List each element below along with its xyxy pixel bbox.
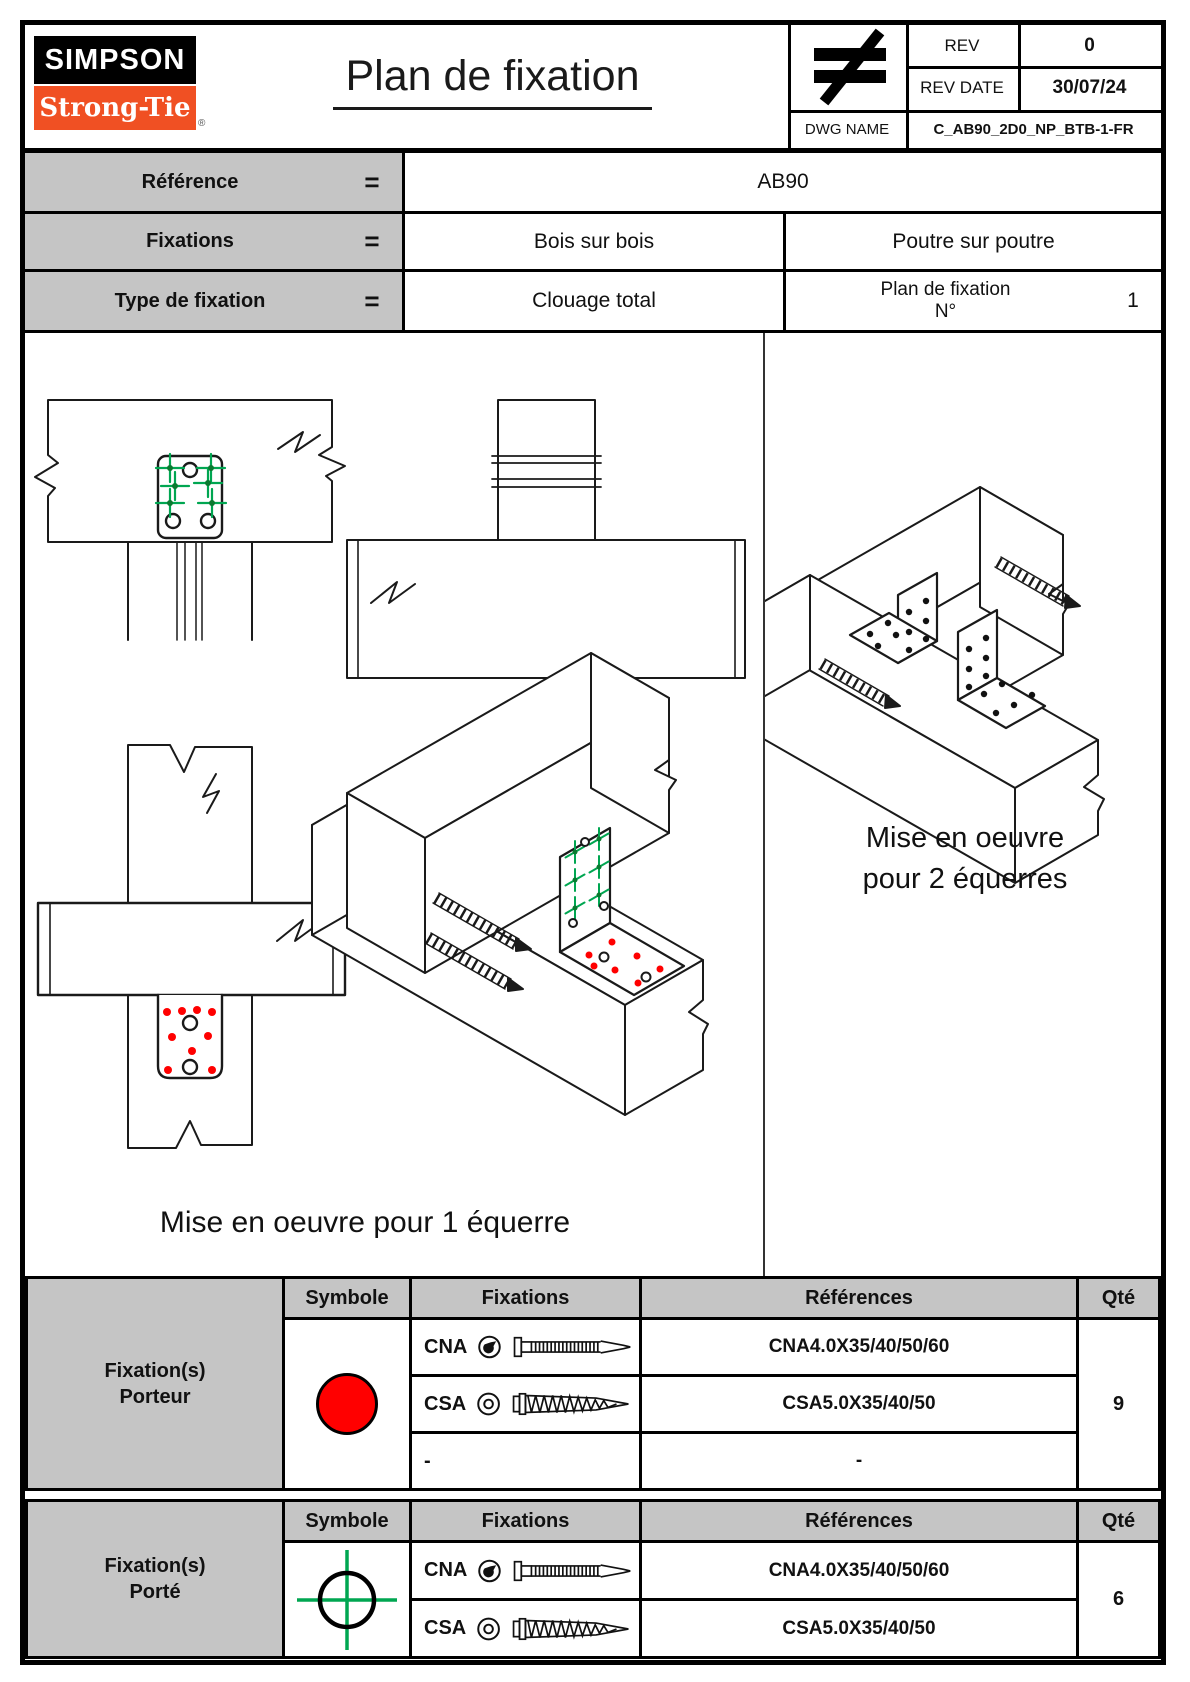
dwg-name-label: DWG NAME: [788, 110, 906, 148]
plan-view-top: [35, 400, 345, 640]
header-symbole: Symbole: [285, 1279, 409, 1317]
reference-csa: CSA5.0X35/40/50: [642, 1377, 1076, 1431]
header-fixations: Fixations: [412, 1279, 639, 1317]
symbol-cell-porteur: [285, 1320, 409, 1488]
symbol-cell-porte: [285, 1543, 409, 1656]
screw-icon: [511, 1390, 639, 1418]
fixation-table-porteur: Fixation(s) Porteur Symbole Fixations Ré…: [25, 1276, 1161, 1491]
reference-csa: CSA5.0X35/40/50: [642, 1601, 1076, 1656]
info-value-poutre: Poutre sur poutre: [786, 214, 1161, 269]
strongtie-logo: Strong-Tie: [34, 86, 196, 130]
rev-label: REV: [906, 25, 1018, 66]
front-view-top: [347, 400, 745, 678]
iso-view-single-bracket: [312, 653, 708, 1115]
logo-top-text: SIMPSON: [45, 44, 186, 77]
csa-head-icon: [476, 1390, 501, 1418]
fixation-table-porte: Fixation(s) Porté Symbole Fixations Réfé…: [25, 1499, 1161, 1659]
equals-icon: =: [352, 214, 392, 269]
header-qty: Qté: [1079, 1502, 1158, 1540]
info-label-type: Type de fixation: [25, 272, 355, 330]
reference-cna: CNA4.0X35/40/50/60: [642, 1543, 1076, 1598]
screw-icon: [511, 1615, 639, 1643]
info-value-clouage: Clouage total: [405, 272, 783, 330]
info-label-reference: Référence: [25, 153, 355, 211]
dwg-name-value: C_AB90_2D0_NP_BTB-1-FR: [906, 110, 1161, 148]
info-label-fixations: Fixations: [25, 214, 355, 269]
cross-view-bottom: [38, 745, 345, 1148]
red-circle-symbol: [316, 1373, 378, 1435]
header-fixations: Fixations: [412, 1502, 639, 1540]
info-value-reference: AB90: [405, 153, 1161, 211]
caption-double-bracket: Mise en oeuvre pour 2 équerres: [775, 818, 1155, 900]
csa-head-icon: [476, 1615, 501, 1643]
fixation-row-empty: -: [412, 1434, 639, 1488]
group-label-porteur: Fixation(s) Porteur: [28, 1279, 282, 1488]
qty-value-porte: 6: [1079, 1543, 1158, 1656]
rev-value: 0: [1018, 25, 1161, 66]
reference-empty: -: [642, 1434, 1076, 1488]
simpson-logo: SIMPSON: [34, 36, 196, 84]
ring-nail-icon: [512, 1334, 639, 1360]
equals-icon: =: [352, 272, 392, 330]
cna-head-icon: [477, 1333, 502, 1361]
rev-date-value: 30/07/24: [1018, 66, 1161, 110]
header-references: Références: [642, 1502, 1076, 1540]
reference-cna: CNA4.0X35/40/50/60: [642, 1320, 1076, 1374]
caption-single-bracket: Mise en oeuvre pour 1 équerre: [45, 1206, 685, 1240]
header-qty: Qté: [1079, 1279, 1158, 1317]
rev-date-label: REV DATE: [906, 66, 1018, 110]
plan-number-value: 1: [1105, 272, 1161, 330]
fixation-row-csa: CSA: [412, 1377, 639, 1431]
drawing-sheet: SIMPSON Strong-Tie ® Plan de fixation RE…: [0, 0, 1190, 1682]
registered-mark: ®: [198, 118, 205, 129]
equals-icon: =: [352, 153, 392, 211]
not-equal-icon: [798, 28, 902, 106]
double-bracket-drawing: [765, 333, 1163, 1273]
logo-bottom-text: Strong-Tie: [39, 93, 190, 123]
fixation-row-cna: CNA: [412, 1320, 639, 1374]
ring-nail-icon: [512, 1558, 639, 1584]
page-title: Plan de fixation: [200, 52, 785, 110]
single-bracket-drawings: [25, 333, 763, 1273]
fixation-row-csa: CSA: [412, 1601, 639, 1656]
header-references: Références: [642, 1279, 1076, 1317]
plan-number-label: Plan de fixation N°: [786, 272, 1105, 330]
qty-value-porteur: 9: [1079, 1320, 1158, 1488]
cna-head-icon: [477, 1557, 502, 1585]
fixation-row-cna: CNA: [412, 1543, 639, 1598]
crosshair-symbol: [295, 1548, 399, 1652]
header-symbole: Symbole: [285, 1502, 409, 1540]
group-label-porte: Fixation(s) Porté: [28, 1502, 282, 1656]
info-value-bois: Bois sur bois: [405, 214, 783, 269]
